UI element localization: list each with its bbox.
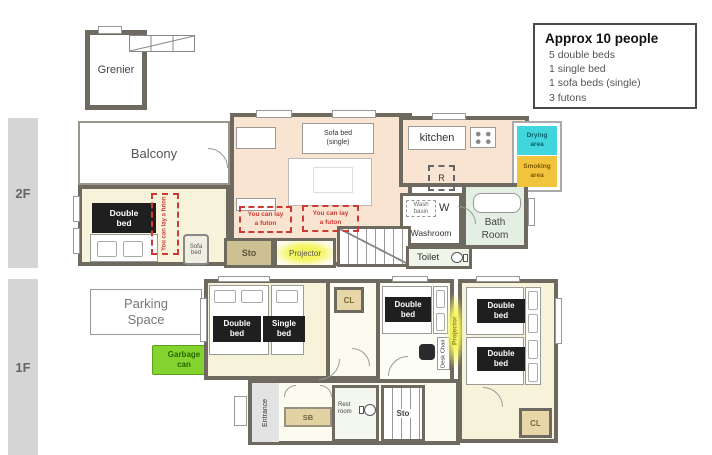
double-bed-text: Double bed: [484, 349, 518, 368]
grenier-label: Grenier: [98, 64, 135, 76]
double-bed-text: Double bed: [391, 300, 425, 319]
washing-machine: W: [439, 202, 449, 214]
storage-2f-label: Sto: [242, 248, 257, 258]
smoking-area: Smoking area: [517, 156, 557, 187]
futon-note-text: You can lay a futon: [246, 211, 286, 228]
window-icon: [476, 276, 520, 282]
toilet-icon: [359, 404, 377, 417]
pillow: [528, 291, 538, 310]
projector-area-1f: Projector: [446, 294, 464, 368]
pillow: [528, 340, 538, 359]
single-bed-label: Single bed: [263, 316, 305, 342]
floor-bar-2f: 2F: [8, 118, 38, 268]
closet-label: CL: [344, 296, 355, 305]
bathtub-icon: [473, 193, 521, 213]
toilet-label: Toilet: [417, 252, 439, 263]
floor-bar-1f: 1F: [8, 279, 38, 455]
storage-2f: Sto: [224, 238, 274, 268]
pillow: [97, 241, 117, 257]
balcony: Balcony: [78, 121, 230, 185]
futon-note: You can lay a futon: [151, 193, 179, 255]
entrance: Entrance: [252, 383, 279, 442]
shoe-box: SB: [284, 407, 332, 427]
floor-label-2f: 2F: [15, 186, 30, 201]
projector-1f-label: Projector: [452, 317, 459, 346]
pillow: [528, 363, 538, 382]
toilet-2f: Toilet: [406, 246, 472, 269]
sofa-bed-small-text: Sofa bed: [187, 244, 205, 256]
closet-right: CL: [519, 408, 552, 438]
table: [288, 158, 372, 206]
closet-label: CL: [530, 419, 541, 428]
window-icon: [332, 110, 376, 118]
floor-label-1f: 1F: [15, 360, 30, 375]
pillow: [528, 314, 538, 333]
parking-space-label: Parking Space: [114, 296, 178, 329]
wash-basin-label: Wash basin: [410, 202, 432, 215]
toilet-icon: [451, 252, 471, 264]
window-icon: [73, 228, 80, 254]
double-bed-label: Double bed: [213, 316, 261, 342]
window-icon: [432, 113, 466, 120]
futon-note-text: You can lay a futon: [160, 197, 171, 252]
parking-space: Parking Space: [90, 289, 202, 335]
sofa-bed-single: Sofa bed (single): [302, 123, 374, 154]
washing-machine-label: W: [439, 202, 449, 214]
double-bed-label: Double bed: [92, 203, 156, 233]
entrance-label: Entrance: [262, 398, 269, 426]
chair: [419, 344, 435, 360]
kitchen-label-box: kitchen: [408, 126, 466, 150]
drying-area: Drying area: [517, 126, 557, 155]
window-icon: [392, 276, 428, 282]
sofa-bed-single-text: Sofa bed (single): [317, 130, 359, 147]
rest-room-text: Rest room: [338, 402, 358, 416]
pillow: [276, 290, 298, 303]
refrigerator: R: [428, 165, 455, 191]
closet-hall: CL: [334, 287, 364, 313]
sofa-bed-small: Sofa bed: [183, 234, 209, 265]
window-icon: [256, 110, 292, 118]
refrigerator-label: R: [438, 173, 445, 183]
capacity-item: 1 sofa beds (single): [545, 76, 685, 90]
pillow: [214, 290, 236, 303]
window-icon: [98, 26, 122, 34]
window-icon: [218, 276, 270, 282]
capacity-item: 5 double beds: [545, 48, 685, 62]
pillow: [123, 241, 143, 257]
rest-room-1f: Rest room: [332, 385, 379, 442]
double-bed-label: Double bed: [385, 297, 431, 322]
stairs-storage-1f: Sto: [381, 385, 425, 442]
pillow: [436, 313, 445, 331]
window-icon: [73, 196, 80, 222]
storage-1f-label: Sto: [395, 409, 412, 418]
wash-basin: Wash basin: [406, 200, 436, 217]
shoe-box-label: SB: [303, 413, 313, 422]
double-bed-text: Double bed: [107, 208, 141, 228]
single-bed-text: Single bed: [267, 319, 301, 338]
table-inner: [313, 167, 353, 193]
futon-note-text: You can lay a futon: [311, 210, 351, 227]
stove-icon: [470, 127, 496, 148]
projector-area-2f: Projector: [274, 238, 336, 268]
ladder-icon: [129, 35, 195, 52]
rest-room-label: Rest room: [338, 402, 358, 416]
garbage-can-label: Garbage can: [163, 350, 205, 371]
double-bed-label: Double bed: [477, 347, 525, 371]
capacity-info-box: Approx 10 people 5 double beds 1 single …: [533, 23, 697, 109]
pillow: [436, 290, 445, 308]
floor-plan: 2F 1F Grenier Approx 10 people 5 double …: [0, 0, 712, 455]
futon-note: You can lay a futon: [302, 205, 359, 232]
capacity-item: 3 futons: [545, 91, 685, 105]
bathroom-label-text: Bath Room: [477, 217, 513, 242]
window-icon: [555, 298, 562, 344]
double-bed-text: Double bed: [484, 301, 518, 320]
cabinet: [236, 127, 276, 149]
double-bed-label: Double bed: [477, 299, 525, 323]
futon-note: You can lay a futon: [239, 206, 292, 233]
kitchen-label: kitchen: [420, 132, 455, 144]
capacity-item: 1 single bed: [545, 62, 685, 76]
window-icon: [528, 198, 535, 226]
pillow: [241, 290, 263, 303]
window-icon: [200, 298, 207, 342]
projector-2f-label: Projector: [289, 249, 321, 258]
toilet-label-text: Toilet: [417, 252, 439, 263]
washroom-label: Washroom: [403, 228, 459, 238]
drying-area-label: Drying area: [524, 132, 550, 149]
porch-step: [234, 396, 247, 426]
bed-frame: [90, 234, 158, 262]
double-bed-text: Double bed: [220, 319, 254, 338]
washroom-label-text: Washroom: [411, 228, 452, 238]
stairs-icon: [337, 226, 411, 267]
balcony-label: Balcony: [131, 146, 177, 161]
smoking-area-label: Smoking area: [523, 163, 551, 180]
pillow-column: [525, 287, 541, 385]
capacity-title: Approx 10 people: [545, 31, 685, 46]
